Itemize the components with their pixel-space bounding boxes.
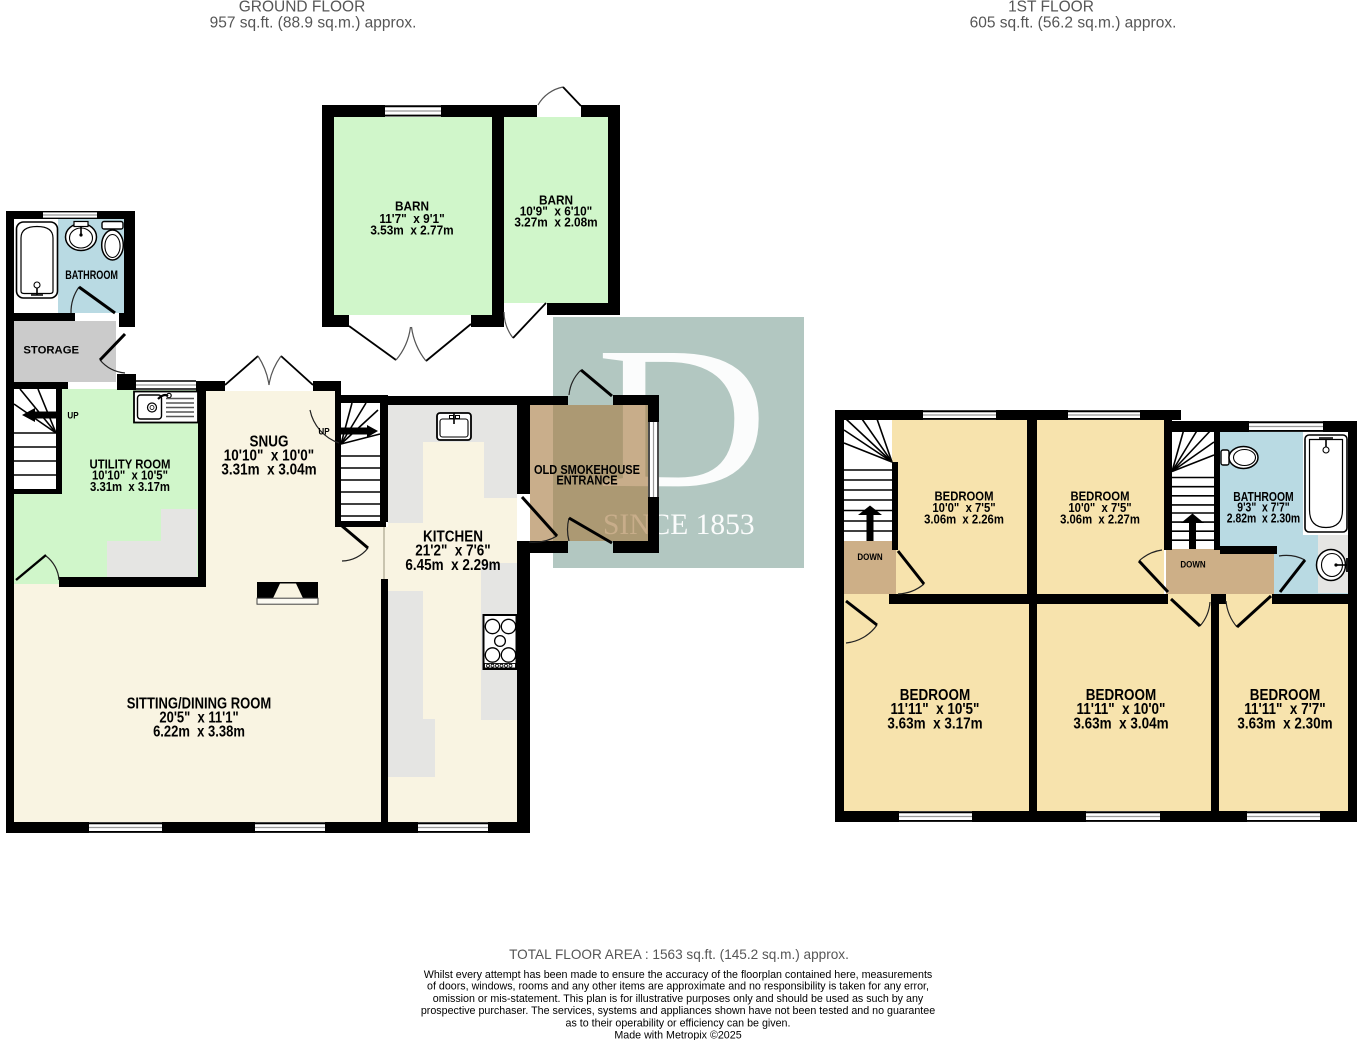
svg-text:DOWN: DOWN bbox=[1180, 559, 1205, 570]
svg-text:UP: UP bbox=[67, 410, 78, 421]
svg-text:BATHROOM: BATHROOM bbox=[65, 270, 118, 282]
svg-text:3.06m x 2.27m: 3.06m x 2.27m bbox=[1060, 512, 1140, 527]
svg-text:3.27m x 2.08m: 3.27m x 2.08m bbox=[514, 215, 597, 229]
svg-text:TOTAL FLOOR AREA : 1563 sq.ft.: TOTAL FLOOR AREA : 1563 sq.ft. (145.2 sq… bbox=[509, 947, 849, 962]
svg-text:Made with Metropix ©2025: Made with Metropix ©2025 bbox=[614, 1029, 741, 1040]
svg-text:3.63m x 3.04m: 3.63m x 3.04m bbox=[1073, 716, 1168, 733]
svg-text:1ST FLOOR: 1ST FLOOR bbox=[1008, 0, 1094, 16]
svg-text:3.53m x 2.77m: 3.53m x 2.77m bbox=[370, 223, 453, 237]
svg-text:957 sq.ft. (88.9 sq.m.) approx: 957 sq.ft. (88.9 sq.m.) approx. bbox=[210, 15, 417, 32]
svg-text:2.82m x 2.30m: 2.82m x 2.30m bbox=[1227, 511, 1300, 525]
svg-text:3.31m x 3.04m: 3.31m x 3.04m bbox=[221, 461, 316, 478]
svg-text:GROUND FLOOR: GROUND FLOOR bbox=[239, 0, 366, 16]
svg-text:605 sq.ft. (56.2 sq.m.) approx: 605 sq.ft. (56.2 sq.m.) approx. bbox=[970, 15, 1177, 32]
svg-text:6.22m x 3.38m: 6.22m x 3.38m bbox=[153, 724, 245, 741]
svg-text:6.45m x 2.29m: 6.45m x 2.29m bbox=[405, 557, 500, 574]
svg-text:3.63m x 2.30m: 3.63m x 2.30m bbox=[1237, 716, 1332, 733]
svg-text:STORAGE: STORAGE bbox=[23, 345, 79, 357]
svg-text:3.31m x 3.17m: 3.31m x 3.17m bbox=[90, 479, 170, 494]
svg-text:omission or mis-statement. Thi: omission or mis-statement. This plan is … bbox=[433, 993, 924, 1005]
svg-text:of doors, windows, rooms and a: of doors, windows, rooms and any other i… bbox=[427, 981, 929, 993]
svg-text:as to their operability or eff: as to their operability or efficiency ca… bbox=[566, 1017, 791, 1029]
svg-text:UP: UP bbox=[318, 426, 329, 437]
svg-text:3.63m x 3.17m: 3.63m x 3.17m bbox=[887, 716, 982, 733]
svg-text:ENTRANCE: ENTRANCE bbox=[556, 473, 617, 488]
svg-text:3.06m x 2.26m: 3.06m x 2.26m bbox=[924, 512, 1004, 527]
svg-text:DOWN: DOWN bbox=[857, 551, 882, 562]
svg-text:prospective purchaser. The ser: prospective purchaser. The services, sys… bbox=[421, 1005, 935, 1017]
svg-text:Whilst every attempt has been: Whilst every attempt has been made to en… bbox=[424, 969, 933, 981]
